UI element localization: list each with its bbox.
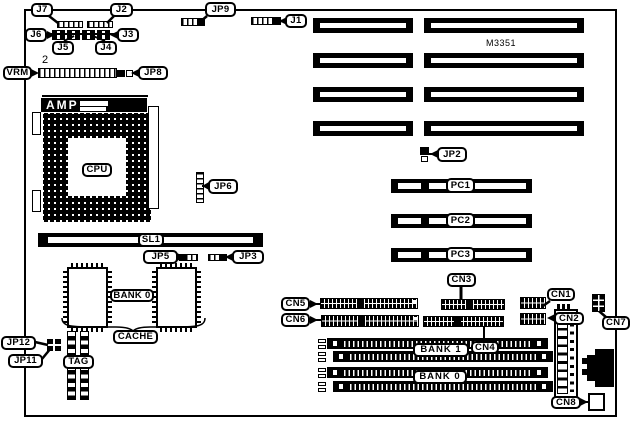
label-cache: CACHE xyxy=(113,330,158,344)
label-cn6: CN6 xyxy=(281,313,310,327)
label-pc1: PC1 xyxy=(446,178,475,193)
pci-key-segment xyxy=(398,183,421,189)
simm-tab xyxy=(318,358,326,362)
keyboard-connector xyxy=(595,349,614,387)
label-tag: TAG xyxy=(63,355,94,369)
label-cn3: CN3 xyxy=(447,273,476,287)
socket-lever xyxy=(148,106,159,209)
label-jp8: JP8 xyxy=(138,66,168,80)
header-cn2 xyxy=(520,313,546,325)
pci-key-segment xyxy=(475,252,526,258)
jumper-block xyxy=(52,30,65,40)
amp-component-2 xyxy=(80,107,106,111)
label-j5: J5 xyxy=(52,41,74,55)
header-cn6 xyxy=(321,315,419,327)
isa-slot-2 xyxy=(424,18,584,33)
motherboard-diagram: 2 AMP M3351 xyxy=(0,0,630,422)
vrm-pin1-number: 2 xyxy=(42,55,48,66)
label-cache-bank0: BANK 0 xyxy=(110,289,154,302)
label-jp2: JP2 xyxy=(437,147,467,162)
socket-tab-top xyxy=(32,112,41,135)
isa-slot-8 xyxy=(424,121,584,136)
header-cn3 xyxy=(441,299,505,310)
label-bank1: BANK 1 xyxy=(413,343,469,357)
header-cn5 xyxy=(320,298,418,309)
pci-key-segment xyxy=(475,183,526,189)
jp11-jp12-block xyxy=(55,346,61,351)
label-cpu: CPU xyxy=(82,163,112,177)
label-jp6: JP6 xyxy=(208,179,238,194)
label-pc3: PC3 xyxy=(446,247,475,262)
socket-tab-bottom xyxy=(32,190,41,212)
simm-tab xyxy=(318,368,326,372)
amp-top-line xyxy=(42,95,148,97)
pci-key-segment xyxy=(398,218,421,224)
simm-tab xyxy=(318,339,326,343)
jp11-jp12-block xyxy=(47,339,53,344)
isa-slot-5 xyxy=(313,87,413,102)
label-bank0: BANK 0 xyxy=(413,370,467,384)
label-j6: J6 xyxy=(25,28,47,42)
jumper-block xyxy=(67,30,80,40)
header-jp6 xyxy=(196,172,204,203)
label-j3: J3 xyxy=(117,28,139,42)
pci-key-segment xyxy=(475,218,526,224)
jp11-jp12-block xyxy=(55,339,61,344)
pin1-marker xyxy=(414,317,417,320)
header-jp3-cap xyxy=(221,254,227,261)
label-cn4: CN4 xyxy=(471,341,499,354)
label-cn1: CN1 xyxy=(547,288,575,301)
label-j4: J4 xyxy=(95,41,117,55)
header-j2 xyxy=(87,21,113,28)
label-cn5: CN5 xyxy=(281,297,310,311)
label-jp9: JP9 xyxy=(205,2,236,17)
keyboard-connector-tab xyxy=(582,369,588,375)
jumper-block xyxy=(82,30,95,40)
cache-chip-2 xyxy=(156,267,197,328)
keyboard-connector-tab xyxy=(582,358,588,364)
header-j7 xyxy=(57,21,83,28)
isa-slot-1 xyxy=(313,18,413,33)
chipset-model-text: M3351 xyxy=(486,39,516,48)
header-jp3 xyxy=(208,254,221,261)
amp-component-1 xyxy=(80,101,108,106)
simm-tab xyxy=(318,374,326,378)
simm-tab xyxy=(318,388,326,392)
simm-tab xyxy=(318,345,326,349)
header-jp2 xyxy=(420,147,429,155)
header-jp8 xyxy=(117,70,125,77)
isa-slot-6 xyxy=(424,87,584,102)
header-jp2-cell xyxy=(421,156,428,162)
chip-pins xyxy=(160,328,193,332)
label-j1: J1 xyxy=(285,14,307,28)
label-jp12: JP12 xyxy=(1,336,36,350)
label-pc2: PC2 xyxy=(446,213,475,228)
label-cn2: CN2 xyxy=(554,312,584,325)
header-cn1 xyxy=(520,297,546,309)
isa-slot-4 xyxy=(424,53,584,68)
pci-key-segment xyxy=(398,252,421,258)
header-jp8-cell xyxy=(126,70,133,77)
simm-tab xyxy=(318,352,326,356)
header-j1-cap xyxy=(273,17,281,25)
simm-tab xyxy=(318,382,326,386)
label-j7: J7 xyxy=(31,3,53,17)
jumper-block xyxy=(97,30,110,40)
header-cn4 xyxy=(423,316,504,327)
label-j2: J2 xyxy=(110,3,133,17)
label-vrm: VRM xyxy=(3,66,32,80)
label-jp5: JP5 xyxy=(143,250,178,264)
amp-label: AMP xyxy=(41,99,79,111)
header-cn7 xyxy=(592,294,605,312)
jp11-jp12-block xyxy=(47,346,53,351)
vrm-connector xyxy=(38,68,117,78)
header-jp5 xyxy=(185,254,198,261)
isa-slot-3 xyxy=(313,53,413,68)
label-cn7: CN7 xyxy=(602,316,630,330)
label-jp11: JP11 xyxy=(8,354,43,368)
label-cn8: CN8 xyxy=(551,396,581,409)
keyboard-connector-front xyxy=(587,355,596,381)
pin1-marker xyxy=(413,300,416,303)
header-jp9-cap xyxy=(198,18,205,26)
label-sl1: SL1 xyxy=(138,233,164,247)
cn8-connector xyxy=(588,393,605,411)
isa-slot-7 xyxy=(313,121,413,136)
chip-pins xyxy=(197,271,201,324)
label-jp3: JP3 xyxy=(232,250,264,264)
cache-chip-1 xyxy=(67,267,108,328)
